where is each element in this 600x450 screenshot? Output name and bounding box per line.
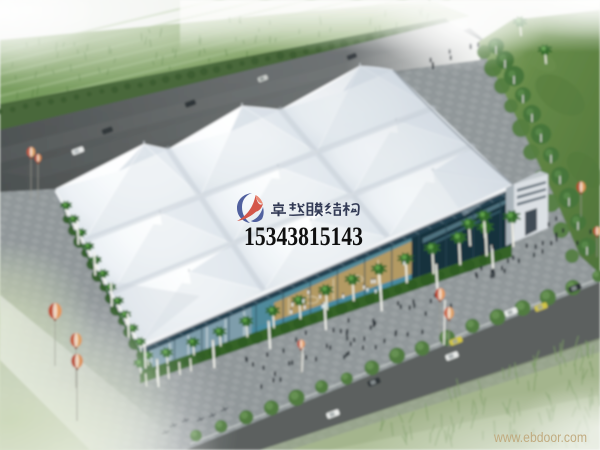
svg-text:www.ebdoor.com: www.ebdoor.com <box>493 429 587 445</box>
svg-text:15343815143: 15343815143 <box>244 222 363 251</box>
